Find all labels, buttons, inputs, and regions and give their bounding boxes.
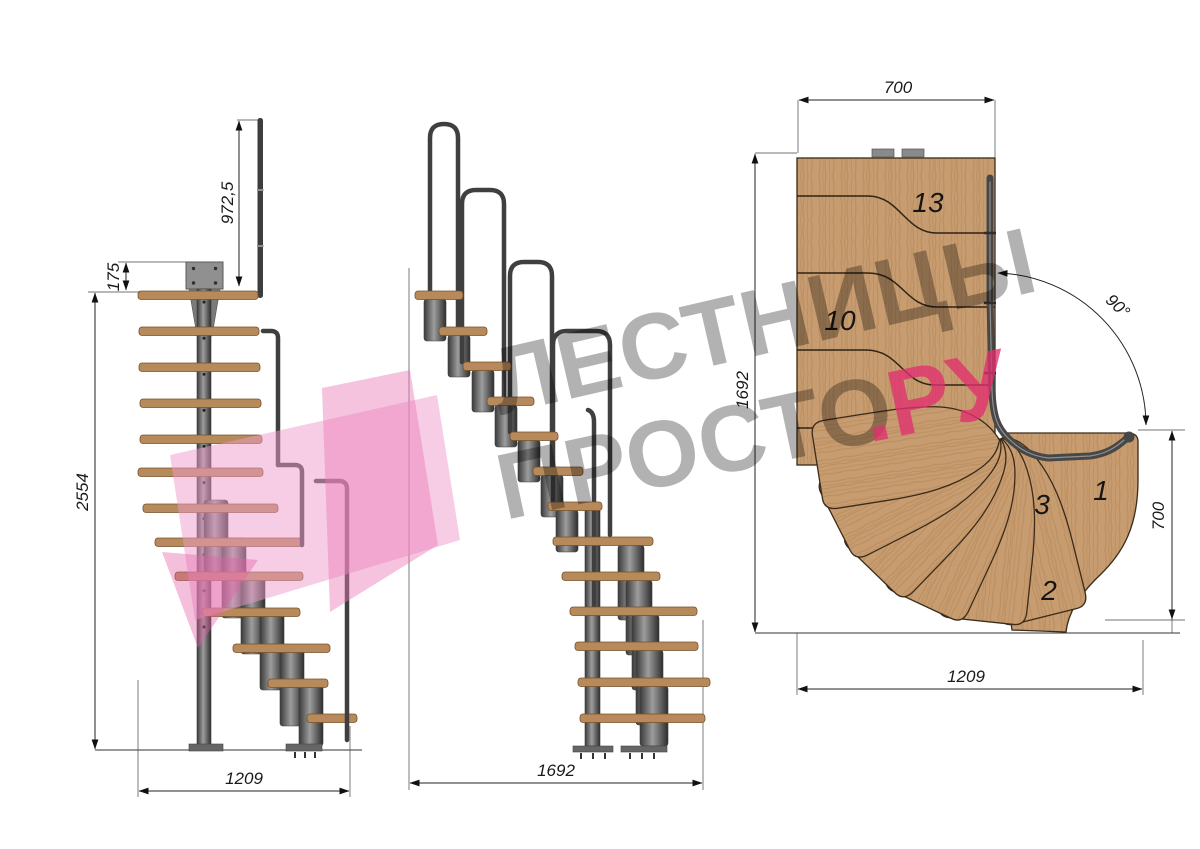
tread xyxy=(268,679,328,688)
wall-tab xyxy=(902,149,924,157)
tread xyxy=(140,399,261,408)
bolt xyxy=(214,281,217,284)
anchor-bolts xyxy=(581,753,605,759)
dim-rail-height: 972,5 xyxy=(218,120,258,286)
tread xyxy=(307,714,357,723)
dim-label: 700 xyxy=(884,78,913,97)
base-foot xyxy=(286,744,322,751)
bolt xyxy=(192,281,195,284)
tread xyxy=(562,572,660,581)
dim-plate-offset: 175 xyxy=(104,262,186,291)
tread xyxy=(233,644,330,653)
tread xyxy=(415,291,463,300)
dim-label: 175 xyxy=(104,262,123,291)
tread xyxy=(139,363,260,372)
tread xyxy=(139,327,259,336)
dim-label: 2554 xyxy=(73,473,92,512)
stair-technical-drawing: 972,5 175 2554 1209 xyxy=(0,0,1200,849)
tread xyxy=(553,537,653,546)
tread xyxy=(580,714,705,723)
plan-step-label-3: 3 xyxy=(1034,489,1050,520)
dim-label: 1692 xyxy=(537,761,575,780)
tread xyxy=(138,291,258,300)
dim-total-height: 2554 xyxy=(73,292,140,749)
tread xyxy=(439,327,487,336)
dim-label: 90° xyxy=(1102,290,1134,322)
dim-label: 1209 xyxy=(225,769,263,788)
dim-plan-bottom-run: 1209 xyxy=(797,633,1143,695)
dim-label: 972,5 xyxy=(218,181,237,224)
wall-tab xyxy=(872,149,894,157)
anchor-bolts xyxy=(630,753,654,759)
dim-plan-top-width: 700 xyxy=(798,78,995,158)
plan-step-label-13: 13 xyxy=(912,187,944,218)
base-foot xyxy=(189,744,223,751)
handrail-post xyxy=(258,118,264,298)
plan-step-label-1: 1 xyxy=(1093,475,1109,506)
base-foot xyxy=(621,746,667,752)
dim-label: 1209 xyxy=(947,667,985,686)
tread xyxy=(578,678,710,687)
bolt xyxy=(192,267,195,270)
dim-label: 700 xyxy=(1149,501,1168,530)
handrail-end-knob xyxy=(1124,432,1135,443)
tread xyxy=(575,642,698,651)
plan-step-label-2: 2 xyxy=(1040,575,1057,606)
base-foot xyxy=(573,746,613,752)
mount-plate xyxy=(186,262,223,289)
bolt xyxy=(214,267,217,270)
tread xyxy=(570,607,697,616)
dim-front-run: 1692 xyxy=(410,761,702,783)
anchor-bolts xyxy=(295,752,315,758)
